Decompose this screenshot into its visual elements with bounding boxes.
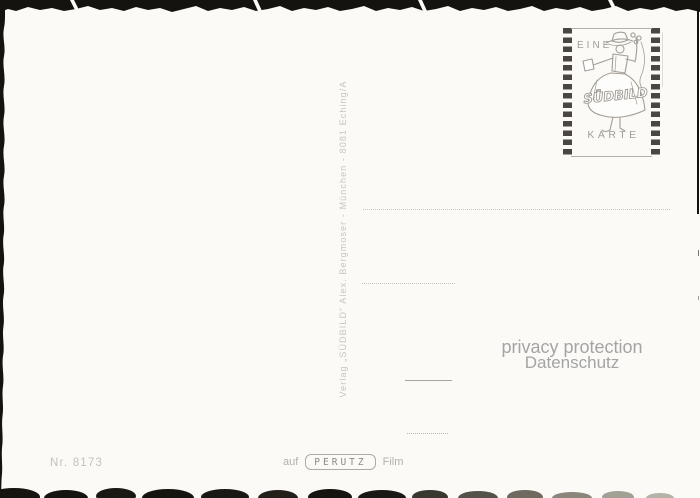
film-credit: auf PERUTZ Film: [283, 454, 403, 470]
deckle-edge-top-icon: [0, 0, 700, 14]
edge-dash-icon: [698, 250, 700, 256]
stamp-border: [571, 156, 652, 157]
film-credit-prefix: auf: [283, 456, 298, 468]
privacy-watermark: privacy protection Datenschutz: [488, 340, 656, 370]
stamp-word-karte: KARTE: [571, 129, 656, 141]
perutz-badge: PERUTZ: [305, 454, 375, 470]
sudbild-logo-stamp-box: SÜDBILD EINE KARTE: [563, 28, 660, 158]
privacy-line-de: Datenschutz: [488, 355, 656, 370]
message-line: [407, 433, 448, 434]
edge-dash-icon: [698, 296, 699, 300]
stamp-word-eine: EINE: [577, 40, 612, 51]
scan-artifact-line: [662, 32, 663, 87]
card-number: Nr. 8173: [50, 457, 103, 469]
publisher-imprint: Verlag „SÜDBILD“ Alex. Bergmoser - Münch…: [338, 59, 352, 419]
film-credit-suffix: Film: [383, 456, 404, 468]
address-line: [362, 283, 455, 284]
address-line: [363, 209, 670, 210]
message-line: [405, 380, 452, 381]
deckle-edge-right-icon: [697, 0, 699, 214]
deckle-edge-bottom-icon: [0, 484, 700, 498]
deckle-edge-left-icon: [0, 0, 8, 498]
postcard-back: SÜDBILD EINE KARTE Verlag „SÜDBILD“ Alex…: [0, 0, 700, 498]
stamp-border: [571, 28, 652, 29]
